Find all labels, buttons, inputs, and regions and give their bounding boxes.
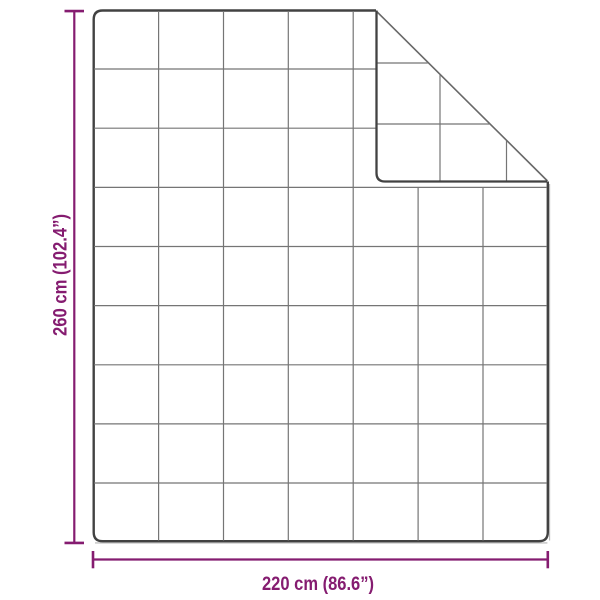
svg-text:260 cm (102.4”): 260 cm (102.4”): [51, 214, 72, 336]
svg-text:220 cm (86.6”): 220 cm (86.6”): [262, 574, 374, 595]
